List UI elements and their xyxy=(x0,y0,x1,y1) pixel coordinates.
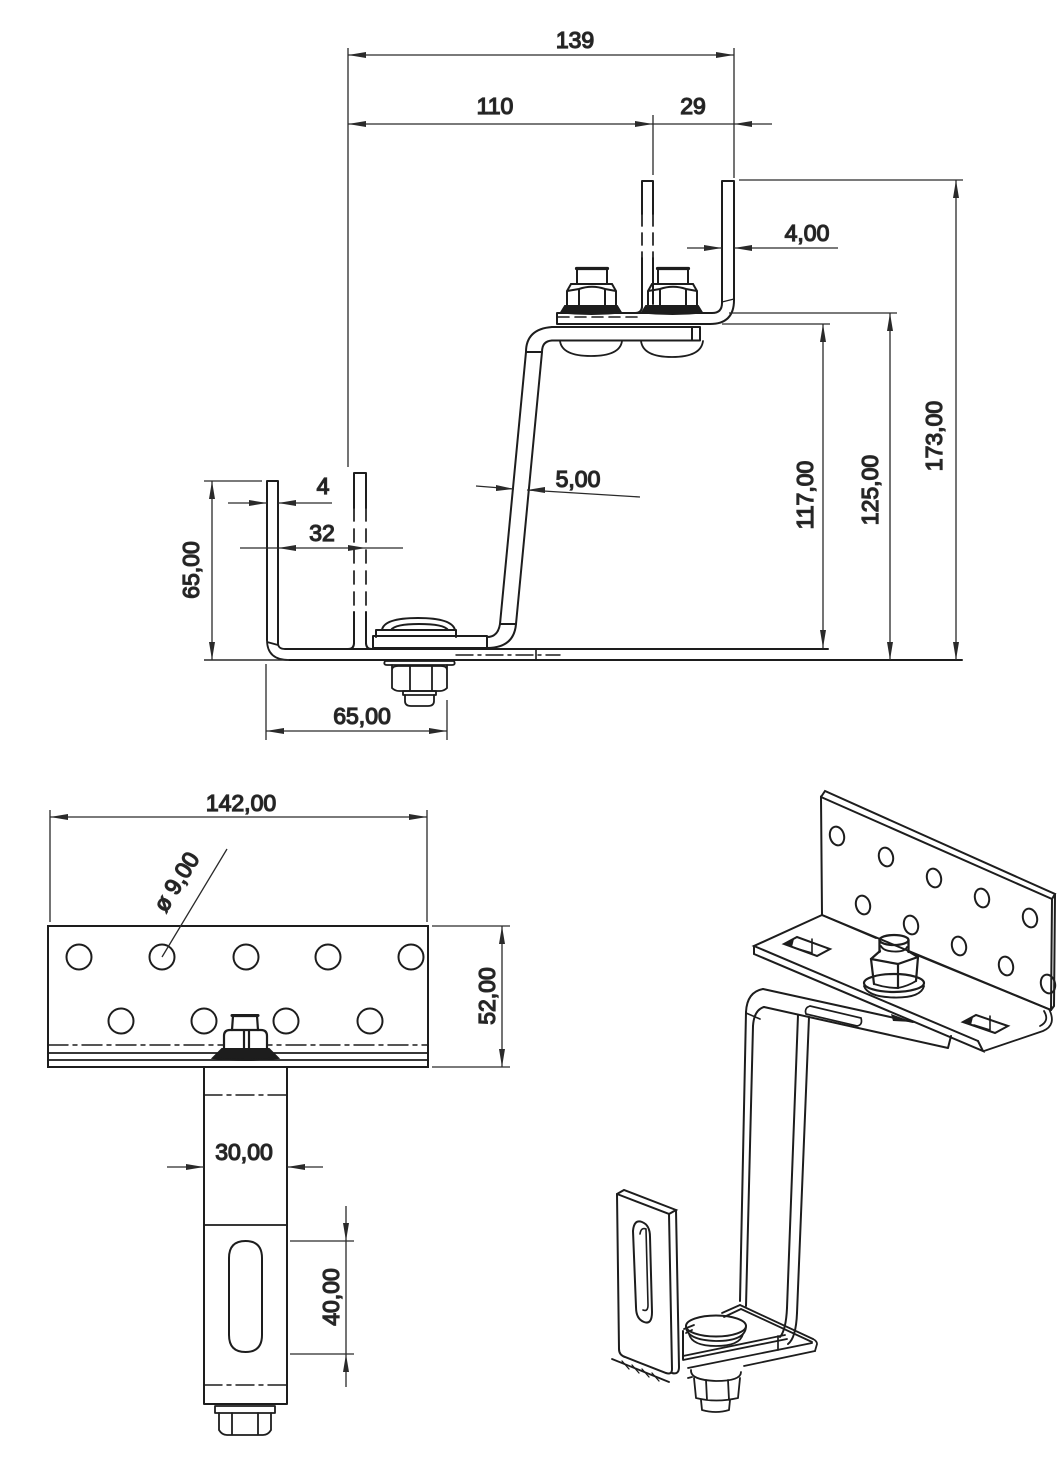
svg-text:29: 29 xyxy=(680,93,706,119)
svg-text:5,00: 5,00 xyxy=(556,466,601,492)
svg-text:142,00: 142,00 xyxy=(206,790,276,816)
svg-text:117,00: 117,00 xyxy=(792,461,818,530)
svg-text:40,00: 40,00 xyxy=(318,1268,344,1326)
svg-text:65,00: 65,00 xyxy=(178,541,204,599)
svg-text:139: 139 xyxy=(556,27,594,53)
svg-text:4,00: 4,00 xyxy=(785,220,830,246)
svg-text:173,00: 173,00 xyxy=(921,401,947,471)
svg-text:30,00: 30,00 xyxy=(215,1139,273,1165)
svg-text:65,00: 65,00 xyxy=(333,703,391,729)
svg-text:110: 110 xyxy=(477,93,514,119)
svg-text:4: 4 xyxy=(317,473,330,499)
svg-text:52,00: 52,00 xyxy=(474,967,500,1025)
svg-text:32: 32 xyxy=(309,520,335,546)
svg-text:125,00: 125,00 xyxy=(857,455,883,525)
